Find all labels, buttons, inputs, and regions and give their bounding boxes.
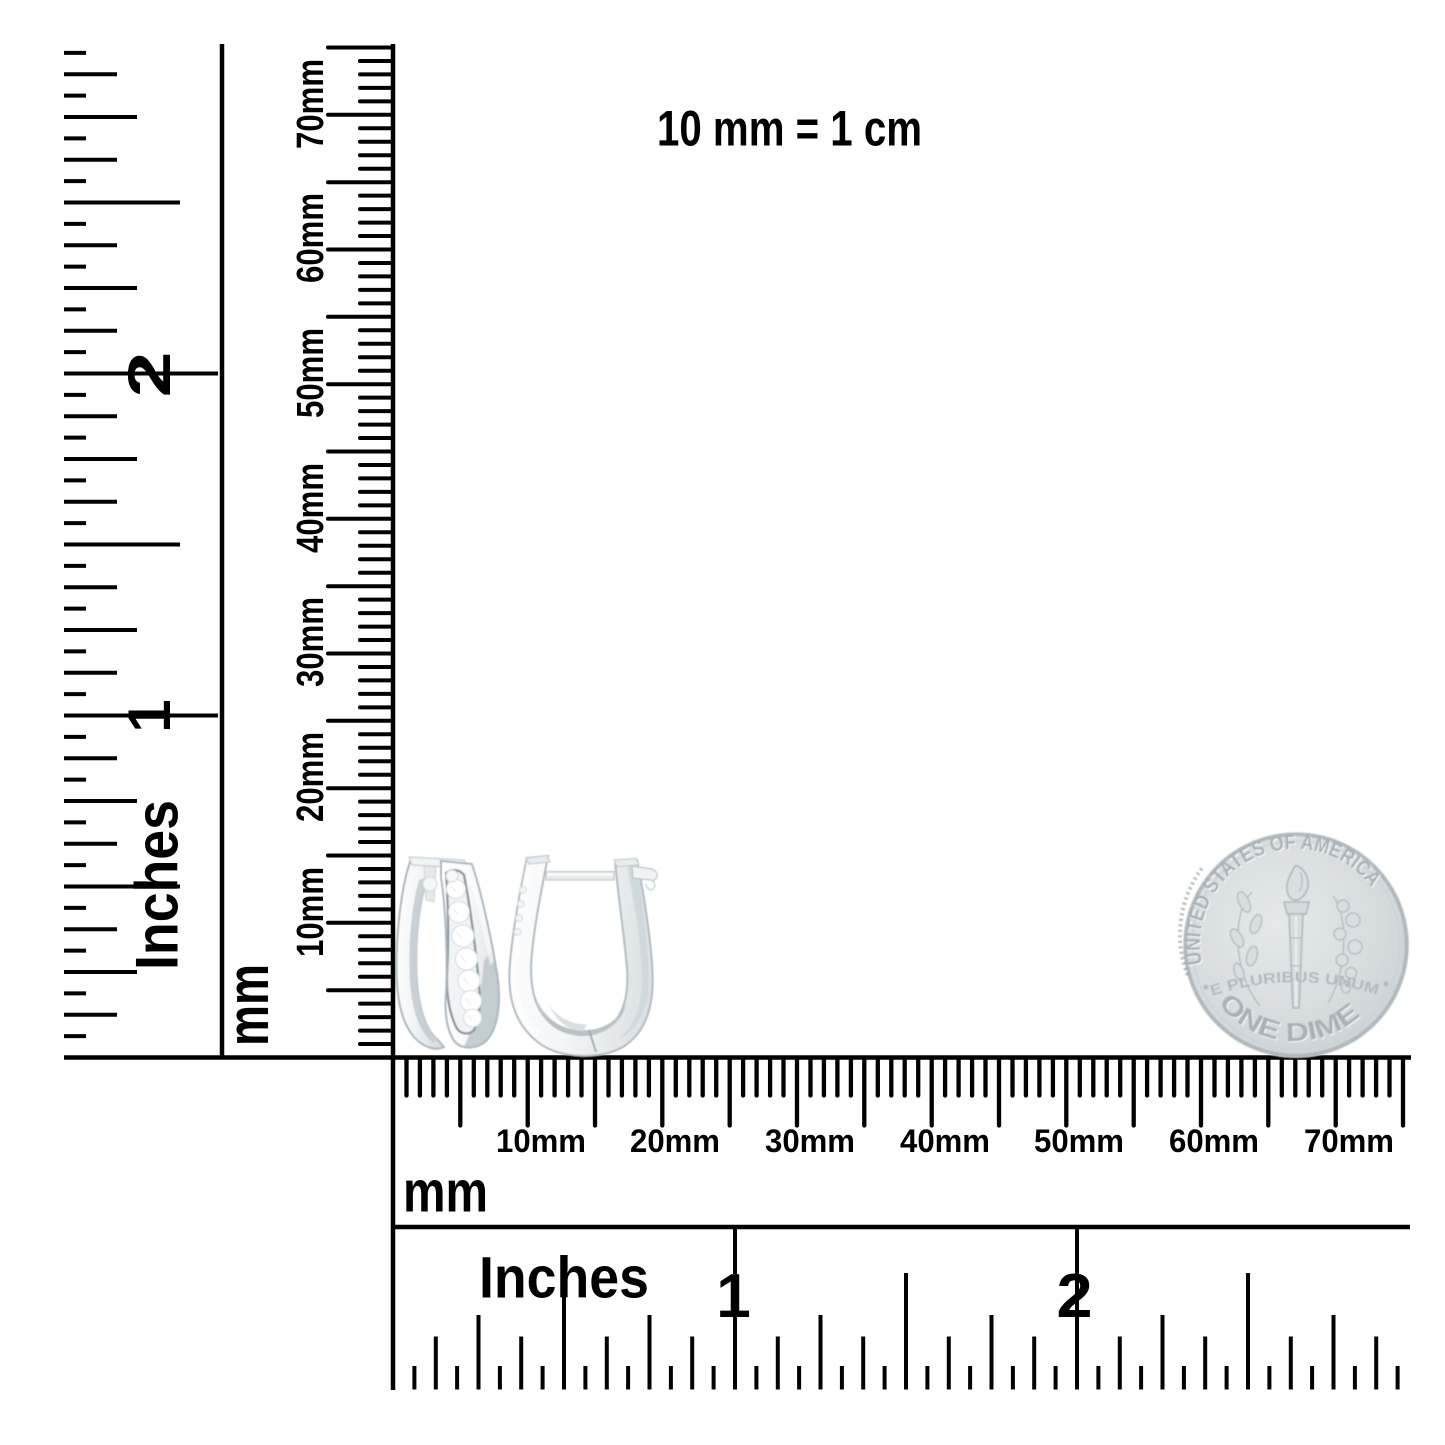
svg-text:60mm: 60mm bbox=[290, 193, 332, 283]
svg-text:10mm: 10mm bbox=[496, 1123, 586, 1159]
svg-text:70mm: 70mm bbox=[1304, 1123, 1394, 1159]
svg-text:20mm: 20mm bbox=[630, 1123, 720, 1159]
svg-text:40mm: 40mm bbox=[900, 1123, 990, 1159]
svg-text:50mm: 50mm bbox=[1034, 1123, 1124, 1159]
svg-text:50mm: 50mm bbox=[290, 328, 332, 418]
svg-text:mm: mm bbox=[216, 964, 281, 1046]
svg-text:70mm: 70mm bbox=[290, 59, 332, 149]
svg-text:10mm: 10mm bbox=[290, 867, 332, 957]
svg-text:30mm: 30mm bbox=[765, 1123, 855, 1159]
svg-text:Inches: Inches bbox=[124, 800, 191, 970]
svg-text:1: 1 bbox=[716, 1262, 750, 1331]
svg-text:10 mm = 1 cm: 10 mm = 1 cm bbox=[657, 101, 922, 157]
svg-text:Inches: Inches bbox=[479, 1246, 649, 1311]
svg-text:20mm: 20mm bbox=[290, 732, 332, 822]
svg-text:30mm: 30mm bbox=[290, 597, 332, 687]
svg-text:mm: mm bbox=[403, 1160, 488, 1225]
svg-text:40mm: 40mm bbox=[290, 463, 332, 553]
svg-text:2: 2 bbox=[1057, 1262, 1093, 1331]
svg-text:2: 2 bbox=[116, 352, 183, 398]
svg-text:60mm: 60mm bbox=[1169, 1123, 1259, 1159]
svg-text:1: 1 bbox=[116, 699, 183, 732]
